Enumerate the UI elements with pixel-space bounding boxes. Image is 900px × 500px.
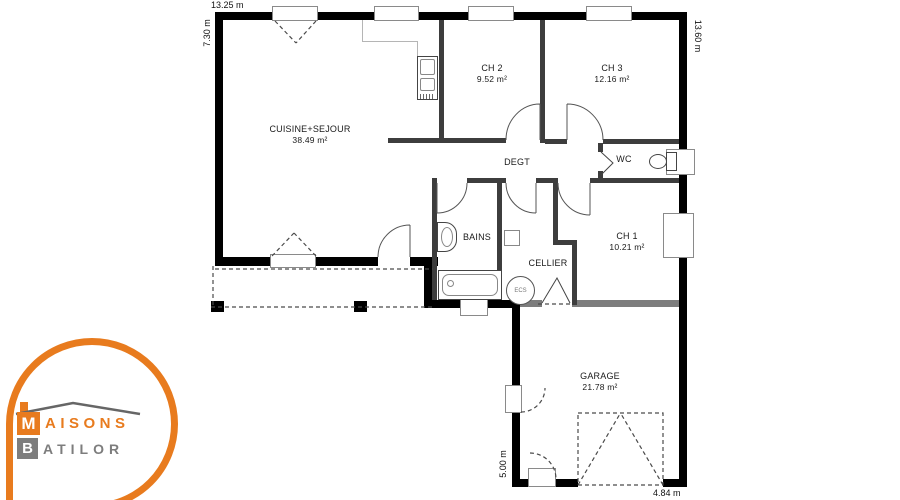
- wall-kitchen-ch2: [439, 20, 444, 138]
- wall-cellier-ch1-upper: [553, 183, 558, 243]
- terrace-post-mid: [354, 301, 367, 312]
- room-area: 38.49 m²: [250, 135, 370, 146]
- logo-word-batilor: ATILOR: [43, 441, 124, 457]
- room-area: 9.52 m²: [452, 74, 532, 85]
- dimension-left: 7.30 m: [202, 13, 212, 53]
- oven-icon: [420, 59, 435, 75]
- logo-word-maisons: AISONS: [45, 415, 130, 432]
- garage-door-opening: [578, 479, 663, 487]
- water-heater-icon: ECS: [506, 276, 535, 305]
- wall-living-bottom-1: [215, 257, 270, 266]
- door-garage-bottom: [528, 468, 556, 487]
- door-arc-ch1: [558, 183, 590, 215]
- toilet-tank-icon: [666, 152, 677, 171]
- microwave-icon: [420, 78, 435, 91]
- room-name: GARAGE: [560, 371, 640, 382]
- wall-ch2-ch3: [540, 20, 545, 143]
- cellier-garage-door: [542, 278, 570, 303]
- room-name: WC: [610, 154, 638, 165]
- wall-living-bottom-2: [316, 257, 378, 266]
- dimension-garage-bottom: 4.84 m: [653, 488, 681, 498]
- room-label-ch1: CH 1 10.21 m²: [587, 231, 667, 253]
- window-living-top: [272, 6, 318, 21]
- room-name: CUISINE+SEJOUR: [250, 124, 370, 135]
- room-area: 21.78 m²: [560, 382, 640, 393]
- vent-icon: [420, 94, 435, 99]
- room-name: CH 3: [572, 63, 652, 74]
- window-kitchen-top: [374, 6, 419, 21]
- logo-letter-m: M: [21, 414, 35, 434]
- garage-side-door-swing: [521, 388, 545, 412]
- window-ch1-right: [663, 213, 694, 258]
- logo-letter-b: B: [22, 440, 33, 457]
- room-area: 10.21 m²: [587, 242, 667, 253]
- wall-wc-left-top: [598, 143, 603, 152]
- wall-garage-top-2: [572, 300, 679, 307]
- logo-m-tile: M: [17, 412, 40, 435]
- window-below-bath: [460, 299, 488, 316]
- french-door-swing-bottom: [272, 233, 316, 256]
- dimension-top: 13.25 m: [211, 0, 244, 10]
- water-heater-label: ECS: [514, 288, 526, 294]
- room-label-ch3: CH 3 12.16 m²: [572, 63, 652, 85]
- logo-b-tile: B: [17, 438, 38, 459]
- room-area: 12.16 m²: [572, 74, 652, 85]
- french-door-swing-top: [275, 21, 316, 43]
- toilet-icon: [649, 154, 667, 169]
- wall-left: [215, 12, 223, 266]
- door-arc-cellier: [506, 183, 536, 213]
- door-arc-ch3: [567, 104, 603, 140]
- bathtub-drain-icon: [447, 280, 454, 287]
- dimension-garage-left: 5.00 m: [498, 443, 508, 485]
- room-label-garage: GARAGE 21.78 m²: [560, 371, 640, 393]
- window-ch2-top: [468, 6, 514, 21]
- room-name: BAINS: [442, 232, 512, 243]
- window-ch3-top: [586, 6, 632, 21]
- wall-ch3-bottom-stub: [545, 139, 567, 144]
- door-garage-side: [505, 385, 522, 413]
- wall-cellier-ch1-lower: [572, 243, 577, 305]
- room-name: CH 1: [587, 231, 667, 242]
- room-label-ch2: CH 2 9.52 m²: [452, 63, 532, 85]
- wall-ch3-bottom: [603, 139, 679, 144]
- kitchen-counter-line-v2: [417, 41, 418, 56]
- room-label-living: CUISINE+SEJOUR 38.49 m²: [250, 124, 370, 146]
- kitchen-counter-line-h: [362, 41, 417, 42]
- wall-wc-left-bottom: [598, 171, 603, 183]
- room-label-wc: WC: [610, 154, 638, 165]
- dimension-right: 13.60 m: [693, 15, 703, 57]
- wall-ch2-bottom: [388, 138, 506, 143]
- room-name: CELLIER: [508, 258, 588, 269]
- room-label-bains: BAINS: [442, 232, 512, 243]
- terrace-outline: [211, 266, 433, 307]
- kitchen-counter-line-v1: [362, 20, 363, 41]
- terrace-post-left: [211, 301, 224, 312]
- garage-door-symbol: [578, 413, 663, 485]
- room-name: DEGT: [487, 157, 547, 168]
- french-door-living-bottom: [270, 254, 316, 268]
- door-arc-bains: [437, 183, 467, 213]
- floor-plan: ECS CUISINE+SEJOUR 38.49 m² CH 2 9.52 m²…: [0, 0, 900, 500]
- door-arc-entrance: [378, 225, 410, 257]
- wall-degt-bottom-3: [590, 178, 679, 183]
- room-label-cellier: CELLIER: [508, 258, 588, 269]
- room-label-degt: DEGT: [487, 157, 547, 168]
- door-arc-ch2: [506, 104, 540, 140]
- room-name: CH 2: [452, 63, 532, 74]
